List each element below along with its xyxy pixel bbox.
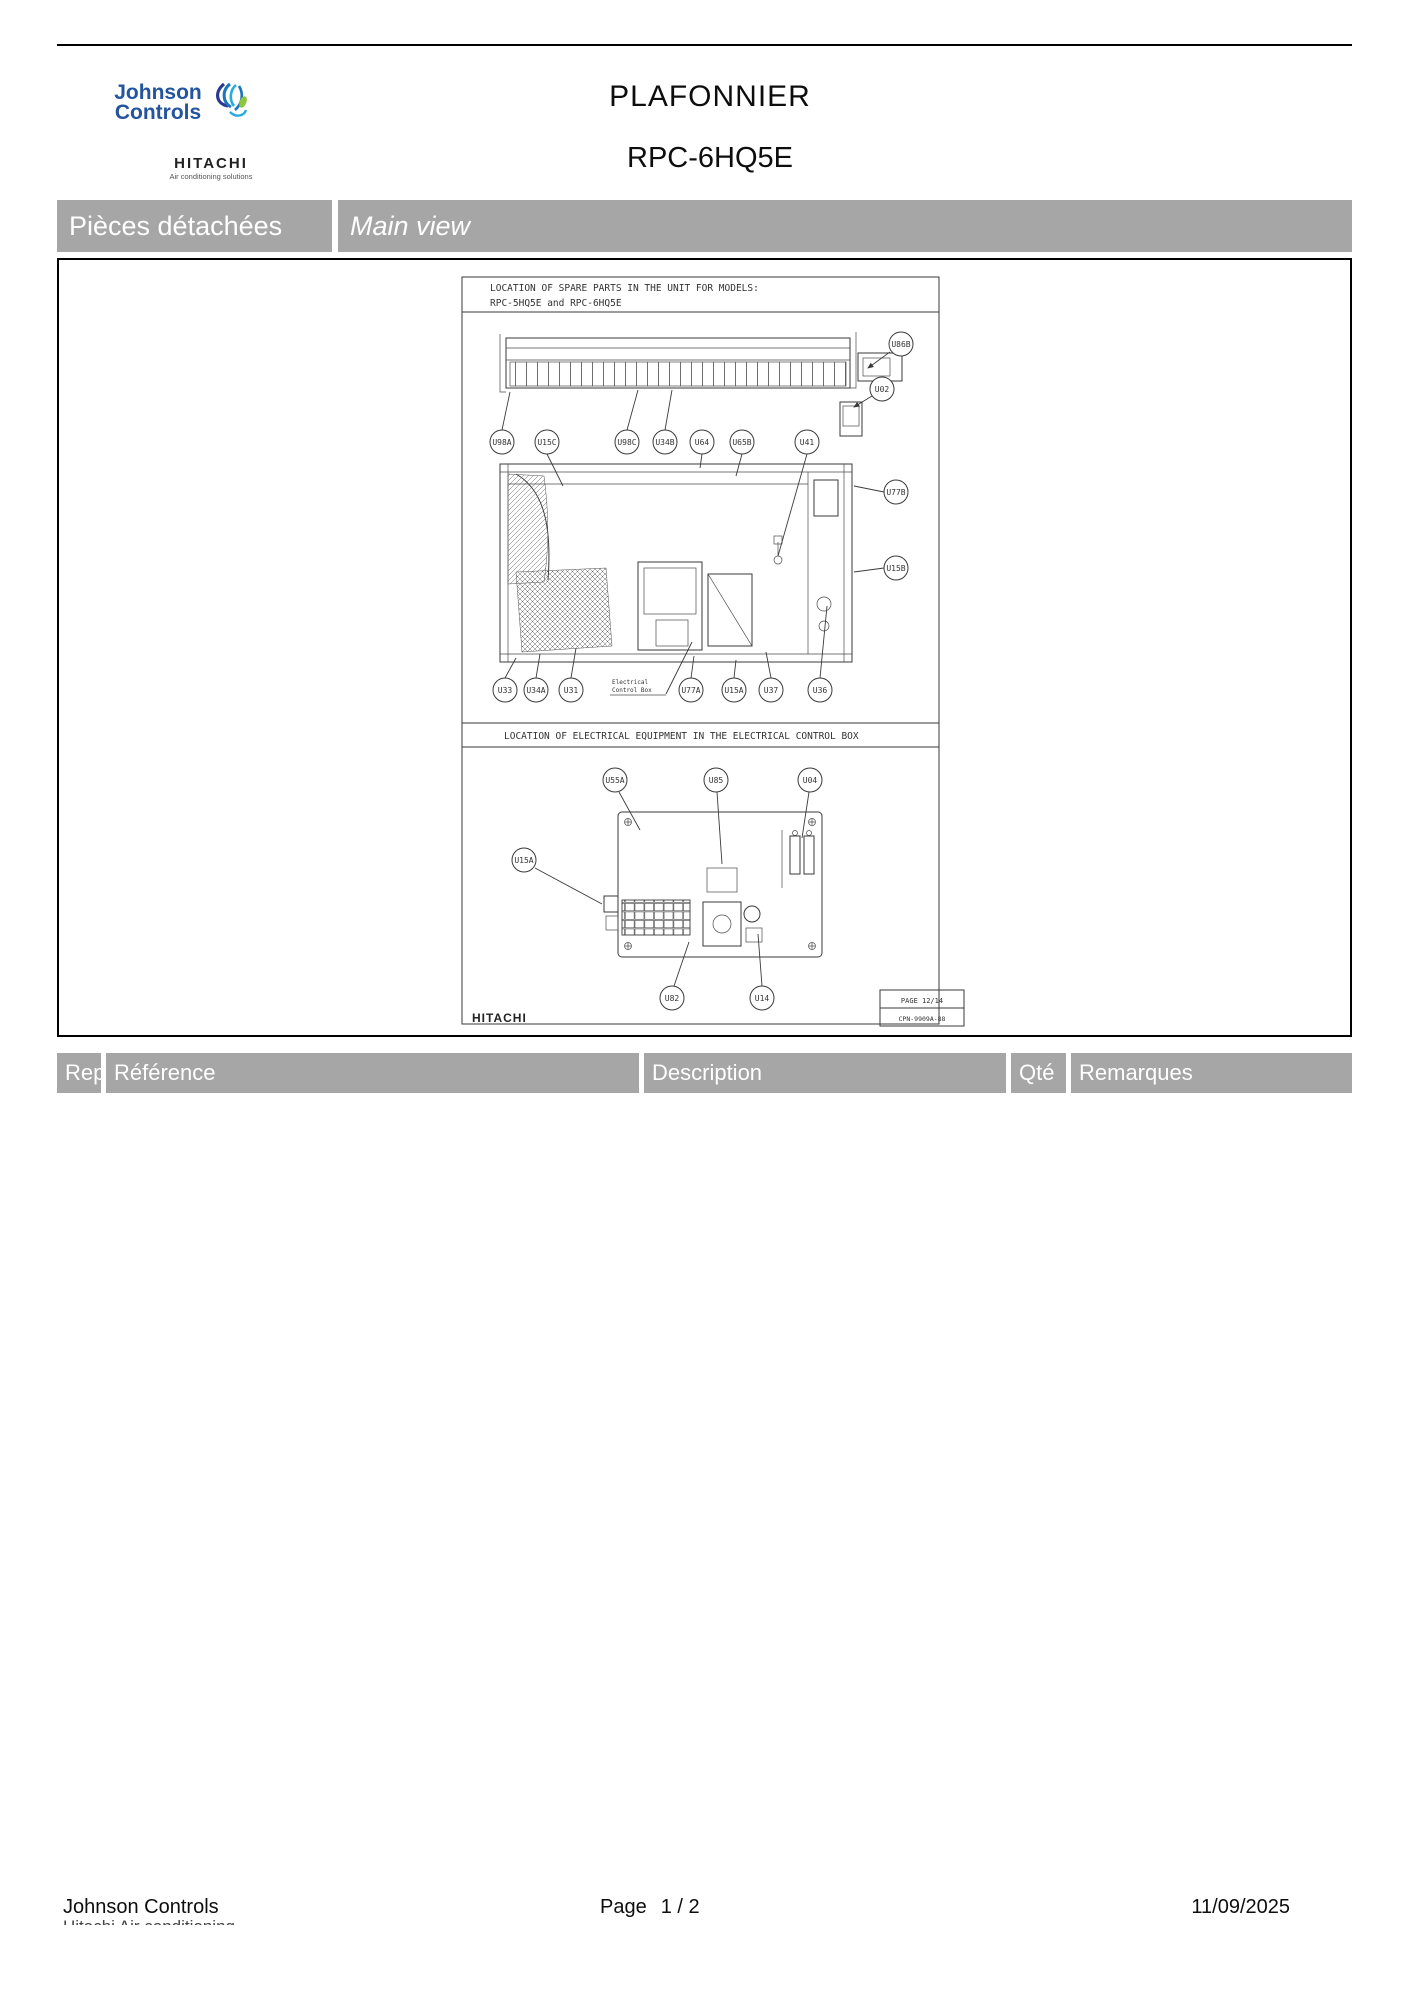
- callout-U15A-upper: U15A: [722, 678, 746, 702]
- page-ref-line2: CPN-9909A-88: [899, 1015, 946, 1023]
- footer-page-label: Page: [600, 1896, 647, 1918]
- front-grille-drawing: [500, 332, 902, 436]
- callout-U64: U64: [690, 430, 714, 454]
- svg-text:U77A: U77A: [681, 686, 700, 695]
- callout-U65B: U65B: [730, 430, 754, 454]
- svg-text:U98A: U98A: [492, 438, 511, 447]
- parts-table-header: Rep. Référence Description Qté Remarques: [57, 1053, 1352, 1093]
- callout-U02: U02: [870, 377, 894, 401]
- callout-U85: U85: [704, 768, 728, 792]
- svg-text:U33: U33: [498, 686, 513, 695]
- svg-text:U41: U41: [800, 438, 815, 447]
- column-header-qty: Qté: [1011, 1053, 1066, 1093]
- johnson-controls-swirl-icon: [208, 80, 248, 128]
- column-header-reference: Référence: [106, 1053, 639, 1093]
- svg-text:U15A: U15A: [514, 856, 533, 865]
- banner-view-label: Main view: [338, 200, 1352, 252]
- page-ref-line1: PAGE 12/14: [901, 997, 943, 1005]
- document-page: Johnson Controls HITACHI Air conditionin…: [0, 0, 1410, 1993]
- svg-text:U86B: U86B: [891, 340, 910, 349]
- johnson-controls-logo-text: Johnson Controls: [108, 83, 208, 123]
- drawing-frame: LOCATION OF SPARE PARTS IN THE UNIT FOR …: [57, 258, 1352, 1037]
- spare-parts-title-line1: LOCATION OF SPARE PARTS IN THE UNIT FOR …: [490, 283, 759, 294]
- svg-text:U15A: U15A: [724, 686, 743, 695]
- note-line2: Control Box: [612, 687, 652, 694]
- callout-U34B: U34B: [653, 430, 677, 454]
- control-box-drawing: [604, 812, 822, 957]
- footer-company: Johnson Controls: [63, 1896, 219, 1919]
- callout-U14: U14: [750, 986, 774, 1010]
- svg-text:U55A: U55A: [605, 776, 624, 785]
- callout-U41: U41: [795, 430, 819, 454]
- svg-text:U37: U37: [764, 686, 779, 695]
- electrical-box-title: LOCATION OF ELECTRICAL EQUIPMENT IN THE …: [504, 731, 859, 742]
- callout-U15B: U15B: [884, 556, 908, 580]
- column-header-rep: Rep.: [57, 1053, 101, 1093]
- callout-U82: U82: [660, 986, 684, 1010]
- model-subtitle: RPC-6HQ5E: [460, 142, 960, 175]
- banner-section-label: Pièces détachées: [57, 200, 332, 252]
- logo-line2: Controls: [108, 103, 208, 123]
- hitachi-brand: HITACHI: [151, 155, 271, 172]
- footer-page-value: 1 / 2: [661, 1896, 700, 1918]
- svg-text:U14: U14: [755, 994, 770, 1003]
- footer-page-indicator: Page1 / 2: [600, 1896, 700, 1919]
- unit-body-drawing: [500, 464, 852, 662]
- svg-text:U34B: U34B: [655, 438, 674, 447]
- technical-diagram: LOCATION OF SPARE PARTS IN THE UNIT FOR …: [460, 274, 970, 1034]
- callout-U37: U37: [759, 678, 783, 702]
- callout-U55A: U55A: [603, 768, 627, 792]
- callout-U98C: U98C: [615, 430, 639, 454]
- callout-U34A: U34A: [524, 678, 548, 702]
- callout-U86B: U86B: [889, 332, 913, 356]
- logo-line1: Johnson: [108, 83, 208, 103]
- svg-text:U36: U36: [813, 686, 828, 695]
- svg-text:U15C: U15C: [537, 438, 556, 447]
- callout-U77A: U77A: [679, 678, 703, 702]
- page-title: PLAFONNIER: [460, 80, 960, 114]
- callout-U33: U33: [493, 678, 517, 702]
- callout-U15A-lower: U15A: [512, 848, 536, 872]
- svg-text:U82: U82: [665, 994, 680, 1003]
- column-header-remarks: Remarques: [1071, 1053, 1352, 1093]
- footer-company-line2-clipped: Hitachi Air conditioning: [63, 1917, 235, 1925]
- svg-text:U64: U64: [695, 438, 710, 447]
- callout-U36: U36: [808, 678, 832, 702]
- electrical-control-box-note: Electrical Control Box: [610, 679, 666, 695]
- svg-text:U31: U31: [564, 686, 579, 695]
- note-line1: Electrical: [612, 679, 649, 686]
- callout-U77B: U77B: [884, 480, 908, 504]
- callout-U04: U04: [798, 768, 822, 792]
- section-banner: Pièces détachées Main view: [57, 200, 1352, 252]
- svg-text:U02: U02: [875, 385, 890, 394]
- svg-text:U15B: U15B: [886, 564, 905, 573]
- callout-U15C: U15C: [535, 430, 559, 454]
- callout-U31: U31: [559, 678, 583, 702]
- svg-text:U85: U85: [709, 776, 724, 785]
- drawing-hitachi-brand: HITACHI: [472, 1011, 527, 1025]
- top-divider: [57, 44, 1352, 46]
- svg-text:U04: U04: [803, 776, 818, 785]
- svg-text:U34A: U34A: [526, 686, 545, 695]
- svg-text:U98C: U98C: [617, 438, 636, 447]
- svg-text:U65B: U65B: [732, 438, 751, 447]
- svg-text:U77B: U77B: [886, 488, 905, 497]
- hitachi-tagline: Air conditioning solutions: [147, 172, 275, 181]
- page-ref-box: PAGE 12/14 CPN-9909A-88: [880, 990, 964, 1026]
- callout-U98A: U98A: [490, 430, 514, 454]
- spare-parts-title-line2: RPC-5HQ5E and RPC-6HQ5E: [490, 298, 622, 309]
- footer-date: 11/09/2025: [1191, 1896, 1290, 1919]
- column-header-description: Description: [644, 1053, 1006, 1093]
- page-footer: Johnson Controls Page1 / 2 11/09/2025 Hi…: [57, 1896, 1352, 1936]
